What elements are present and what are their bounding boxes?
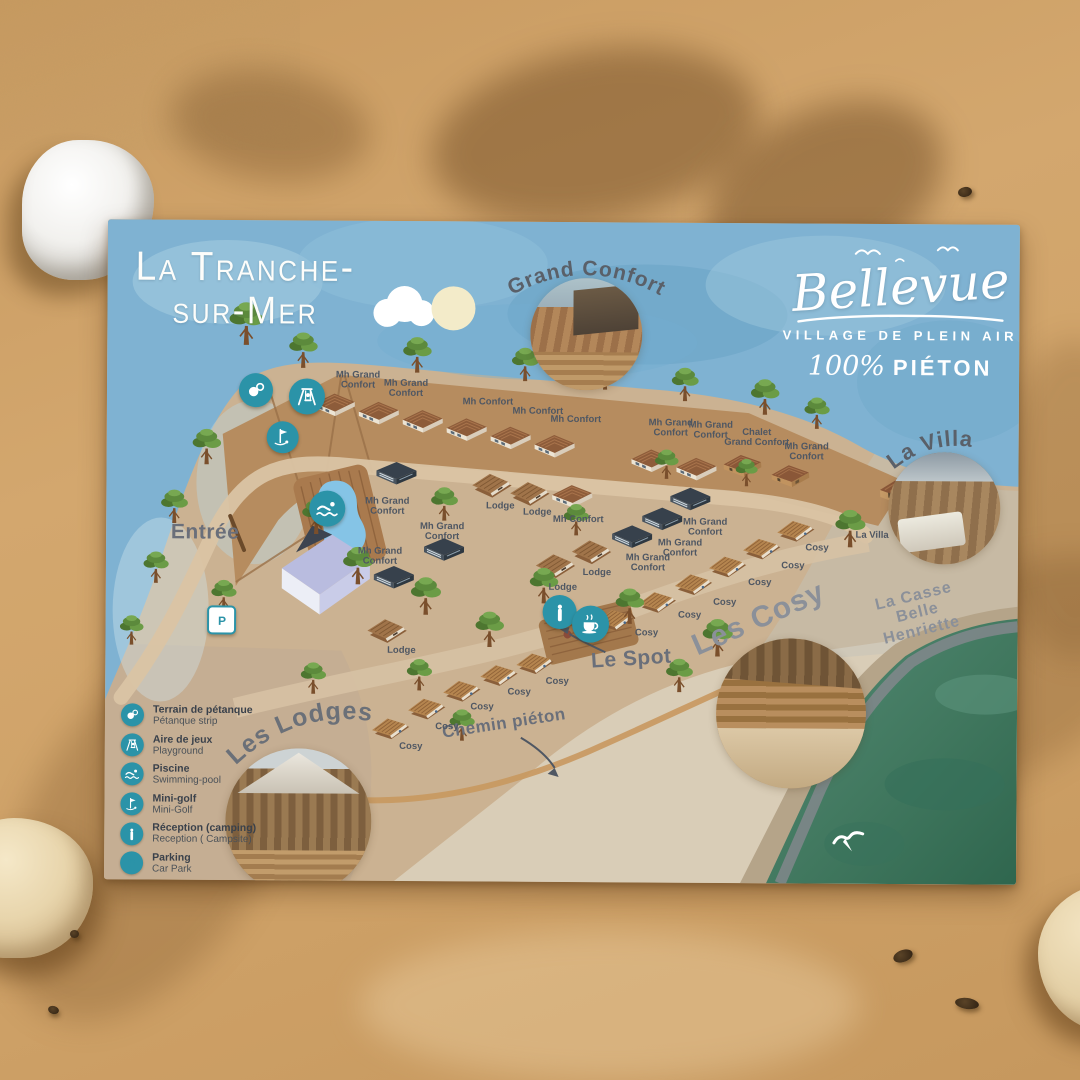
pine-tree-icon xyxy=(668,365,701,403)
map-label: Mh Confort xyxy=(463,397,514,408)
cabin-lodge xyxy=(471,467,513,499)
pine-tree-icon xyxy=(652,447,681,481)
swimmer-icon xyxy=(309,490,345,526)
pine-tree-icon xyxy=(407,574,444,617)
map-label: Lodge xyxy=(523,508,552,518)
map-label: Cosy xyxy=(678,611,701,621)
legend-item: PiscineSwimming-pool xyxy=(121,762,257,786)
les-cosy-photo xyxy=(716,638,867,789)
brand-tagline-text: PIÉTON xyxy=(893,355,993,381)
beach-sand-background: La Tranche- sur-Mer Bellevue VILLAGE DE … xyxy=(0,0,1080,1080)
map-label: La Villa xyxy=(856,531,889,541)
legend-item: Mini-golfMini-Golf xyxy=(120,792,256,816)
pebble xyxy=(892,947,915,965)
brand-subtitle: VILLAGE DE PLEIN AIR xyxy=(775,327,1020,344)
pine-tree-icon xyxy=(612,585,647,625)
minigolf-icon xyxy=(120,792,143,815)
legend-text: Aire de jeuxPlayground xyxy=(153,733,213,757)
map-label: Cosy xyxy=(546,677,569,687)
campsite-map: La Tranche- sur-Mer Bellevue VILLAGE DE … xyxy=(104,219,1020,885)
cabin-confort xyxy=(356,399,401,430)
grand-confort-photo xyxy=(530,278,643,391)
parking-icon: P xyxy=(207,605,236,634)
brand-tagline-percent: 100% xyxy=(808,350,885,381)
legend-text: Mini-golfMini-Golf xyxy=(152,792,196,816)
map-label: Mh Grand Confort xyxy=(649,418,693,439)
map-label: Mh Grand Confort xyxy=(358,547,402,568)
petanque-icon xyxy=(239,373,273,407)
map-label: Mh Grand Confort xyxy=(384,379,428,400)
minigolf-icon xyxy=(267,421,299,453)
map-label: Chalet Grand Confort xyxy=(724,428,789,449)
pine-tree-icon xyxy=(801,395,832,431)
cabin-chalet xyxy=(768,461,814,494)
pebble xyxy=(957,186,973,198)
pine-tree-icon xyxy=(428,484,461,522)
map-label: Lodge xyxy=(583,568,612,578)
pine-tree-icon xyxy=(117,613,146,647)
map-label: Mh Grand Confort xyxy=(420,522,464,543)
petanque-icon xyxy=(121,704,144,727)
map-label: Lodge xyxy=(548,583,577,593)
info-icon xyxy=(120,822,143,845)
playground-icon xyxy=(121,733,144,756)
map-label: Lodge xyxy=(486,501,515,511)
cabin-confort xyxy=(400,408,445,439)
parking-icon: P xyxy=(120,851,143,874)
pine-tree-icon xyxy=(140,549,171,585)
cabin-confort xyxy=(444,416,489,447)
map-title-line1: La Tranche- xyxy=(136,243,356,290)
pine-tree-icon xyxy=(747,376,782,416)
map-legend: Terrain de pétanquePétanque strip Aire d… xyxy=(120,703,257,884)
legend-item: Aire de jeuxPlayground xyxy=(121,733,257,757)
la-villa-photo xyxy=(888,452,1001,565)
map-label: Cosy xyxy=(635,628,658,638)
legend-text: ParkingCar Park xyxy=(152,851,192,875)
map-label: Entrée xyxy=(171,521,239,544)
pine-tree-icon xyxy=(733,456,760,487)
cabin-lodge xyxy=(509,476,551,508)
map-label: Cosy xyxy=(748,578,771,588)
sand-highlight xyxy=(360,930,860,1080)
cabin-cosy xyxy=(478,657,521,691)
legend-text: Réception (camping)Reception ( Campsite) xyxy=(152,822,256,846)
map-label: Mh Confort xyxy=(553,515,604,526)
pine-tree-icon xyxy=(189,426,224,466)
pine-tree-icon xyxy=(158,487,191,525)
brand-tagline: 100%PIÉTON xyxy=(775,350,1020,383)
map-label: Cosy xyxy=(470,702,493,712)
pebble xyxy=(70,930,79,938)
map-label: Cosy xyxy=(713,598,736,608)
map-label: Mh Confort xyxy=(550,415,601,426)
pine-tree-icon xyxy=(472,608,507,648)
legend-item: P ParkingCar Park xyxy=(120,851,256,875)
legend-item: Terrain de pétanquePétanque strip xyxy=(121,703,257,727)
coffee-icon xyxy=(572,606,609,643)
map-label: Cosy xyxy=(781,561,804,571)
legend-text: Terrain de pétanquePétanque strip xyxy=(153,704,253,728)
sand-shadow xyxy=(163,57,376,194)
pine-tree-icon xyxy=(286,329,321,369)
cabin-confort xyxy=(488,424,533,455)
cabin-mh xyxy=(610,523,654,553)
map-label: Mh Grand Confort xyxy=(683,517,727,538)
swimmer-icon xyxy=(121,763,144,786)
pine-tree-icon xyxy=(400,334,435,374)
legend-text: PiscineSwimming-pool xyxy=(153,763,222,787)
map-label: Cosy xyxy=(507,688,530,698)
map-label: Mh Grand Confort xyxy=(336,370,380,391)
map-title: La Tranche- sur-Mer xyxy=(135,243,355,333)
svg-text:P: P xyxy=(218,613,226,627)
cabin-confort xyxy=(532,432,577,463)
map-label: Cosy xyxy=(435,722,458,732)
pebble xyxy=(954,996,979,1010)
cabin-lodge xyxy=(366,613,408,645)
cabin-cosy xyxy=(514,645,557,679)
beige-stone-right xyxy=(1038,882,1080,1032)
legend-item: Réception (camping)Reception ( Campsite) xyxy=(120,822,256,846)
cabin-mh xyxy=(374,460,418,490)
map-label: Mh Grand Confort xyxy=(365,497,409,518)
cabin-cosy xyxy=(672,566,715,600)
brand-logo: Bellevue VILLAGE DE PLEIN AIR 100%PIÉTON xyxy=(775,241,1020,383)
cabin-lodge xyxy=(571,534,613,566)
map-label: Mh Grand Confort xyxy=(784,442,828,463)
map-label: Cosy xyxy=(805,543,828,553)
svg-text:P: P xyxy=(128,858,136,870)
map-title-line2: sur-Mer xyxy=(135,289,355,333)
pine-tree-icon xyxy=(832,507,869,550)
playground-icon xyxy=(289,378,325,414)
map-label: Mh Grand Confort xyxy=(626,553,670,574)
